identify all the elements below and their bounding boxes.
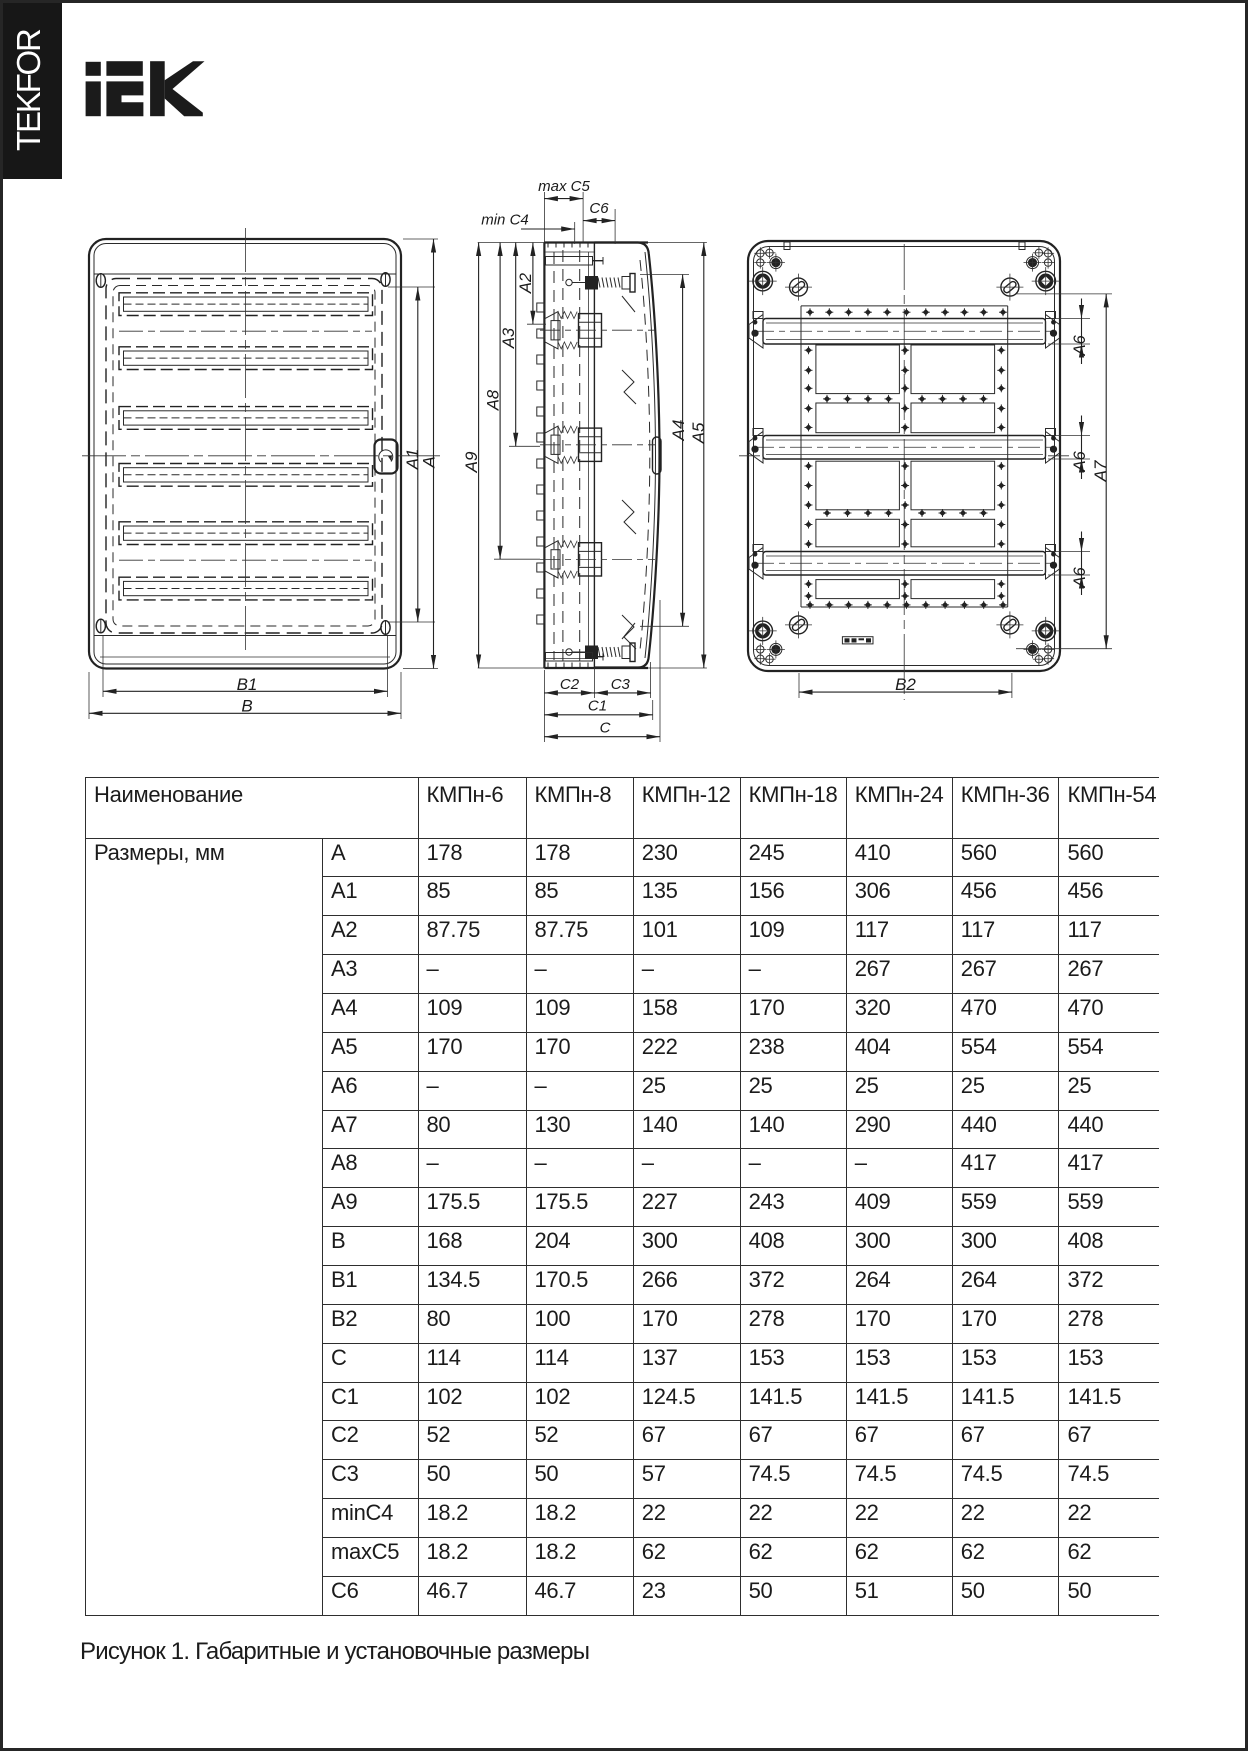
svg-text:C1: C1 [588, 698, 607, 715]
svg-text:A7: A7 [1091, 460, 1110, 482]
svg-text:B1: B1 [237, 675, 258, 694]
svg-text:A6: A6 [1071, 334, 1089, 356]
svg-text:A2: A2 [517, 273, 535, 294]
svg-text:B: B [241, 697, 252, 716]
svg-text:max C5: max C5 [538, 178, 590, 195]
svg-text:min C4: min C4 [481, 212, 529, 229]
svg-text:A5: A5 [689, 422, 708, 444]
svg-text:C2: C2 [560, 676, 580, 693]
svg-text:A6: A6 [1071, 450, 1089, 472]
svg-text:A4: A4 [669, 420, 688, 442]
svg-text:A6: A6 [1071, 566, 1089, 588]
svg-text:A8: A8 [485, 389, 503, 411]
svg-text:A9: A9 [462, 451, 481, 473]
svg-text:C6: C6 [589, 200, 609, 217]
svg-text:C: C [600, 720, 611, 737]
svg-text:B2: B2 [895, 675, 916, 694]
svg-text:A: A [420, 456, 439, 468]
svg-text:A3: A3 [500, 327, 518, 349]
svg-text:C3: C3 [611, 676, 631, 693]
